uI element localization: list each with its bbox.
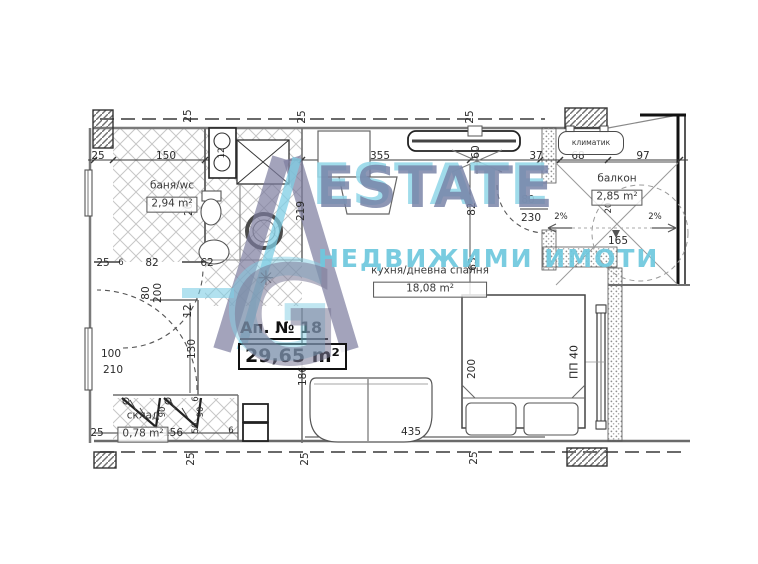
- dimension-label: 25: [90, 428, 103, 439]
- dimension-label: 230: [521, 213, 541, 224]
- dimension-label: 82: [467, 202, 478, 215]
- room-label-bathroom: баня/wc2,94 m²: [146, 180, 197, 213]
- room-area: 0,78 m²: [117, 427, 168, 443]
- dimension-label: 6: [118, 259, 123, 268]
- room-label-kitchen-living: кухня/дневна спалня18,08 m²: [371, 265, 489, 298]
- dimension-label: 97: [636, 151, 649, 162]
- dimension-label: 130: [187, 339, 198, 359]
- room-name: баня/wc: [146, 180, 197, 192]
- dimension-label: 25: [300, 452, 311, 465]
- room-label-balcony: балкон2,85 m²: [591, 173, 642, 206]
- dimension-label: 37: [529, 151, 542, 162]
- dimension-label: 6: [228, 427, 233, 436]
- dimension-label: 165: [608, 236, 628, 247]
- dimension-label: 80: [141, 286, 152, 299]
- dimension-label: 25: [297, 110, 308, 123]
- window-mark-label: ПП 40: [569, 345, 580, 379]
- dimension-label: 60: [471, 145, 482, 158]
- dimension-label: 12: [183, 304, 194, 317]
- apartment-number-label: Ап. № 18: [240, 318, 328, 340]
- room-name: кухня/дневна спалня: [371, 265, 489, 277]
- dimension-label: 80: [521, 195, 534, 206]
- floor-plan-page: 2515012252535525603768972072198263802302…: [0, 0, 758, 564]
- dimension-label: 25: [183, 109, 194, 122]
- dimension-label: 200: [467, 359, 478, 379]
- dimension-label: 2%: [648, 213, 662, 222]
- apartment-total-area-label: 29,65 m²: [238, 343, 347, 370]
- dimension-label: 210: [103, 365, 123, 376]
- room-area: 2,85 m²: [591, 190, 642, 206]
- dimension-label: 355: [370, 151, 390, 162]
- light-fixture-icon: ✳: [258, 268, 275, 288]
- dimension-label: 25: [465, 110, 476, 123]
- room-name: склад: [117, 410, 168, 422]
- dimension-label: 90: [197, 407, 206, 418]
- dimension-label: 50: [192, 423, 201, 434]
- dimension-label: 25: [469, 451, 480, 464]
- room-area: 18,08 m²: [373, 282, 487, 298]
- dimension-label: 6: [192, 396, 201, 401]
- dimension-label: 12: [218, 148, 227, 159]
- room-area: 2,94 m²: [146, 197, 197, 213]
- dimension-label: 200: [153, 283, 164, 303]
- room-label-storage: склад0,78 m²: [117, 410, 168, 443]
- dimension-label: 2%: [554, 213, 568, 222]
- dimension-label: 82: [145, 258, 158, 269]
- dimension-label: 25: [186, 452, 197, 465]
- dimension-label: 100: [101, 349, 121, 360]
- dimension-label: 25: [96, 258, 109, 269]
- dimension-label: 219: [296, 201, 307, 221]
- air-conditioner-label: климатик: [558, 131, 624, 155]
- dimension-label: 435: [401, 427, 421, 438]
- dimension-label: 62: [200, 258, 213, 269]
- dimension-label: 25: [91, 151, 104, 162]
- room-name: балкон: [591, 173, 642, 185]
- dimension-label: 150: [156, 151, 176, 162]
